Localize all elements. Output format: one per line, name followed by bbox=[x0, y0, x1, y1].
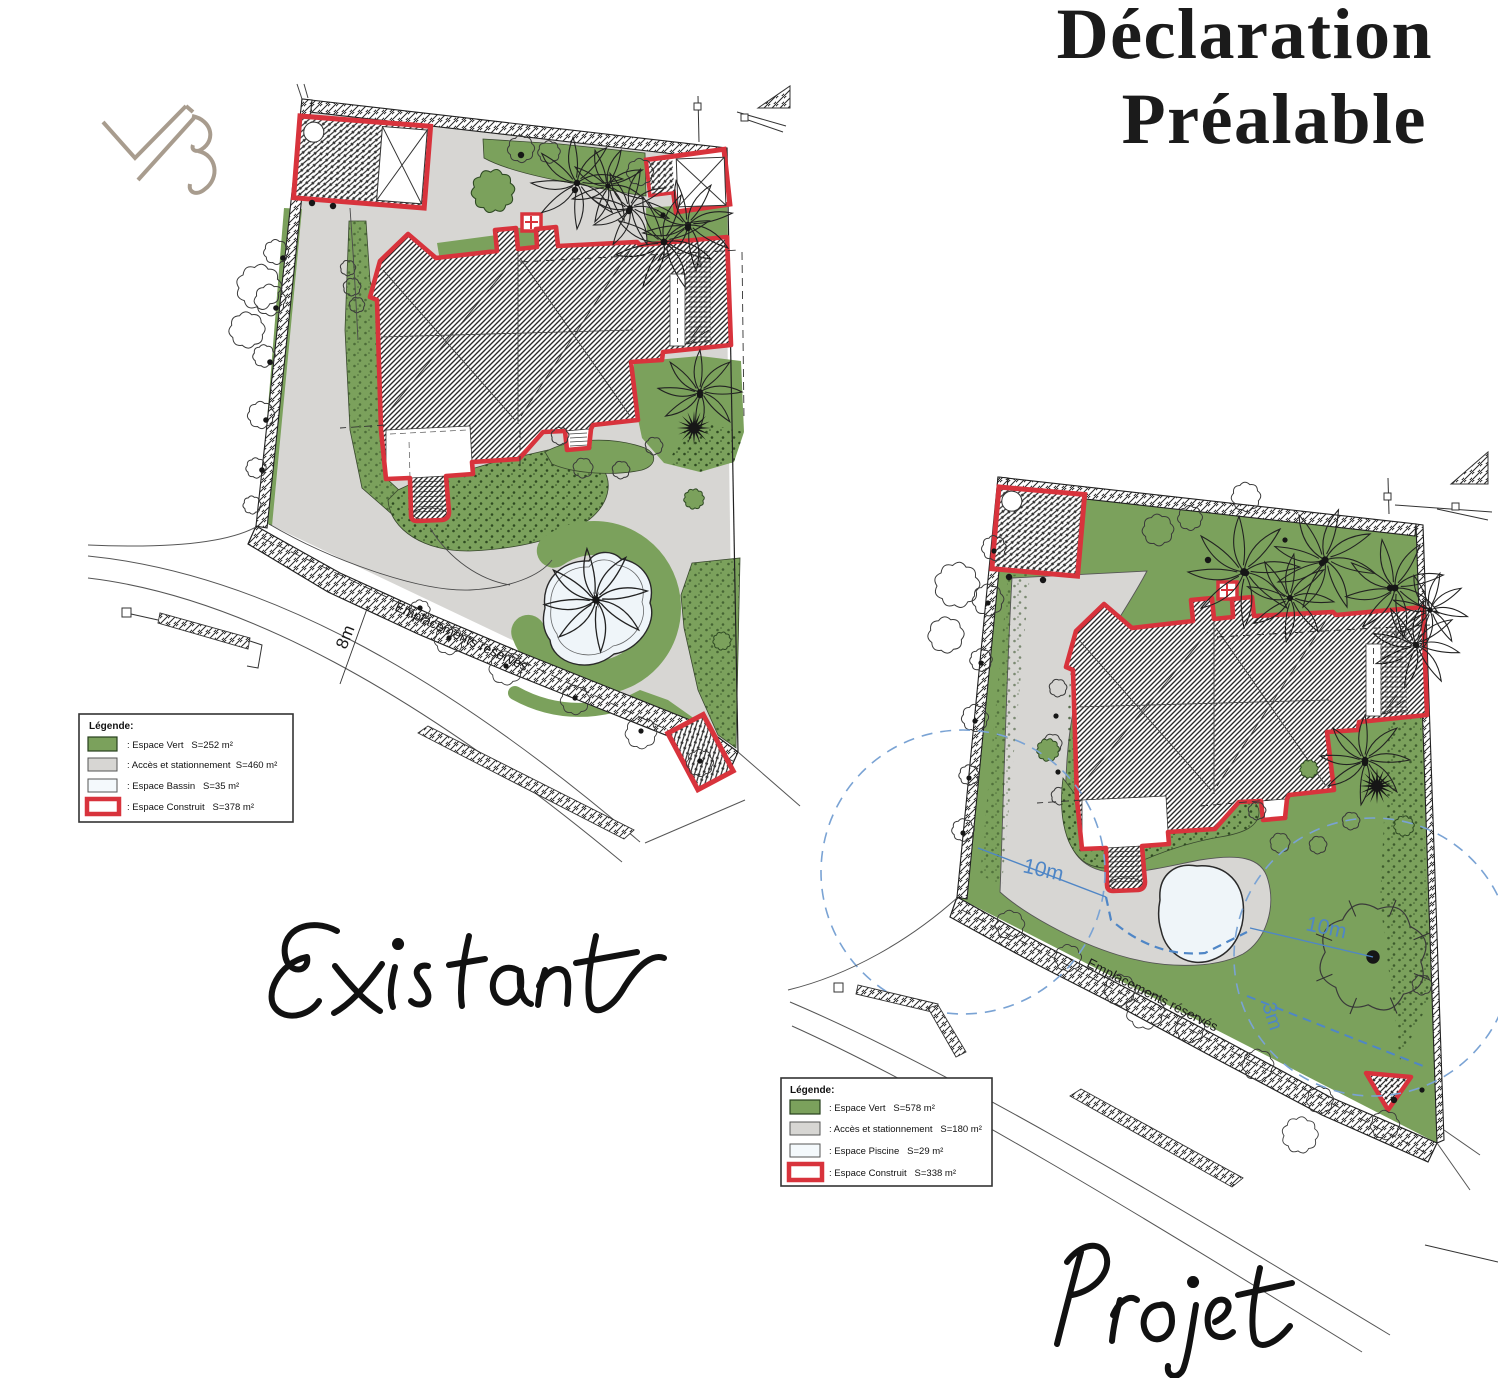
svg-text:: Espace Vert S=578 m²: : Espace Vert S=578 m² bbox=[829, 1103, 935, 1114]
svg-text:: Espace Construit S=338 m²: : Espace Construit S=338 m² bbox=[829, 1168, 956, 1179]
svg-text:: Espace Bassin S=35 m²: : Espace Bassin S=35 m² bbox=[127, 781, 239, 792]
svg-text:: Espace Vert S=252 m²: : Espace Vert S=252 m² bbox=[127, 740, 233, 751]
svg-text:Légende:: Légende: bbox=[790, 1085, 834, 1096]
svg-text:Préalable: Préalable bbox=[1122, 79, 1427, 159]
svg-text:Déclaration: Déclaration bbox=[1057, 0, 1433, 74]
svg-text:: Espace Construit S=378 m²: : Espace Construit S=378 m² bbox=[127, 802, 254, 813]
svg-text:: Espace Piscine S=29 m²: : Espace Piscine S=29 m² bbox=[829, 1146, 943, 1157]
svg-text:: Accès et stationnement S=46: : Accès et stationnement S=460 m² bbox=[127, 760, 277, 771]
svg-text:: Accès et stationnement S=1: : Accès et stationnement S=180 m² bbox=[829, 1124, 982, 1135]
svg-text:Légende:: Légende: bbox=[89, 721, 133, 732]
